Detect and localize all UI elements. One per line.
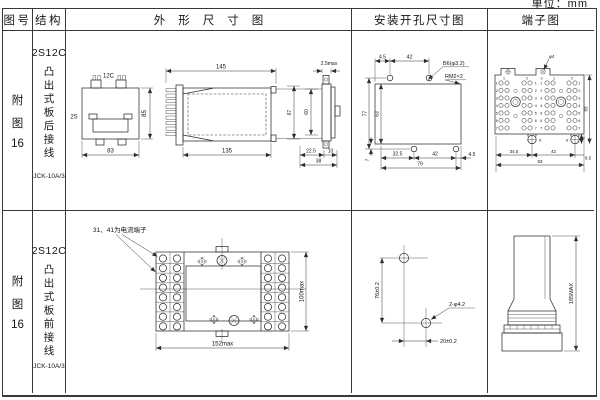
dim-185max: 185MAX <box>569 283 575 304</box>
row-num-right: 3 <box>578 96 580 100</box>
row-num-left: 6 <box>496 119 498 123</box>
dim-20: 20±0.2 <box>440 339 457 345</box>
dim-63: 63 <box>375 111 381 117</box>
col-num: 1 <box>553 77 555 81</box>
row-num-cr: 3 <box>540 96 542 100</box>
cover-side-view: 185MAX <box>488 211 593 392</box>
dim-2-5max: 2.5max <box>321 61 338 67</box>
dim-145: 145 <box>216 65 227 71</box>
row-num-right: 2 <box>578 89 580 93</box>
height-dim <box>552 236 580 351</box>
dim-22-5: 22.5 <box>306 149 316 155</box>
header-install: 安装开孔尺寸图 <box>374 12 465 28</box>
col-num: 1 <box>503 77 505 81</box>
dim-32-5: 32.5 <box>393 152 403 158</box>
dim-152max: 152max <box>212 342 233 348</box>
structure-cell-row1: 2S12C 凸出式板后接线 JCK-10A/3 <box>33 31 66 211</box>
label-2phi42: 2-φ4.2 <box>449 302 465 308</box>
dim-34-5: 34.5 <box>510 149 519 154</box>
dim-135: 135 <box>222 149 233 155</box>
figure-char: 图 <box>12 115 24 131</box>
thread-callout <box>445 80 466 84</box>
dim-6-5: 6.5 <box>585 156 592 161</box>
label-phi4: φ4 <box>549 54 555 59</box>
plate-feet <box>528 134 579 144</box>
terminal-cell-row1: φ4 1 2 3 1 2 1 2 3 4 5 <box>488 31 594 211</box>
terminal-drawing: φ4 1 2 3 1 2 1 2 3 4 5 <box>488 31 593 210</box>
terminal-cell-row2: 185MAX <box>488 211 594 393</box>
figure-char: 附 <box>12 92 24 108</box>
foot-num: 8 <box>566 139 568 143</box>
figure-number: 16 <box>11 319 24 331</box>
dim-83: 83 <box>107 149 114 155</box>
row-num-cr: 1 <box>540 81 542 85</box>
figure-cell-row1: 附 图 16 <box>3 31 33 211</box>
install-cell-row1: 4.5 42 B6(φ3.2) RM2×2 77 63 7 <box>352 31 488 211</box>
dim-10: 10 <box>328 149 334 155</box>
figure-char: 图 <box>12 296 24 312</box>
row-num-cr: 6 <box>540 119 542 123</box>
dim-12c: 12C <box>103 74 115 80</box>
dim-83-height: 83 <box>583 106 588 112</box>
note-leaders <box>116 235 158 273</box>
bottom-dims <box>381 146 471 170</box>
dim-76: 76±0.2 <box>375 282 381 299</box>
relay-front-face <box>140 238 306 342</box>
panel-cutout <box>375 75 461 152</box>
outline-cell-row1: 12C 2S 83 85 <box>66 31 352 211</box>
row-num-left: 4 <box>496 104 498 108</box>
row-num-cr: 2 <box>540 89 542 93</box>
row-num-cr: 4 <box>540 104 542 108</box>
row-num-cl: 1 <box>535 81 537 85</box>
outline-drawing-front-wiring: 31、41为电流端子 <box>66 211 351 392</box>
label-rm2: RM2×2 <box>445 74 463 80</box>
row-num-right: 1 <box>578 81 580 85</box>
col-num: 2 <box>526 77 528 81</box>
row-num-cr: 7 <box>540 126 542 130</box>
wiring-label: 凸出式板前接线 <box>42 264 57 359</box>
dim-85: 85 <box>142 110 148 117</box>
mount-hole-callout <box>544 59 549 70</box>
model-label: 2S12C <box>33 245 66 257</box>
row-num-right: 5 <box>578 111 580 115</box>
edge-thickness-dim <box>313 69 340 74</box>
dim-42-top: 42 <box>406 55 412 61</box>
header-terminal: 端子图 <box>522 12 561 28</box>
dim-42-bottom: 42 <box>432 152 438 158</box>
type-label: JCK-10A/3 <box>33 363 64 370</box>
hole-callout <box>431 308 475 320</box>
dim-60: 60 <box>304 109 310 115</box>
row-num-left: 2 <box>496 89 498 93</box>
dim-67: 67 <box>287 110 293 116</box>
dim-83-total: 83 <box>537 159 543 164</box>
header-outline: 外形尺寸图 <box>141 12 277 28</box>
wiring-label: 凸出式板后接线 <box>42 66 57 161</box>
dim-77: 77 <box>363 111 369 117</box>
dim-2s: 2S <box>70 115 77 121</box>
top-dims <box>375 58 429 82</box>
row-num-cl: 6 <box>535 119 537 123</box>
header-structure: 结构 <box>35 12 63 28</box>
current-terminal-note: 31、41为电流端子 <box>93 225 147 234</box>
dim-7: 7 <box>365 158 370 161</box>
figure-cell-row2: 附 图 16 <box>3 211 33 393</box>
row-num-right: 7 <box>578 126 580 130</box>
dim-42-terminal: 42 <box>551 149 557 154</box>
install-drawing-front-wiring: 76±0.2 20±0.2 2-φ4.2 <box>352 211 487 392</box>
dim-4-5-bottom: 4.5 <box>469 152 476 158</box>
dim-100max: 100max <box>300 281 306 302</box>
row-num-right: 6 <box>578 119 580 123</box>
row-num-cl: 5 <box>535 111 537 115</box>
figure-char: 附 <box>12 273 24 289</box>
row-num-left: 3 <box>496 96 498 100</box>
relay-side-view <box>166 85 322 145</box>
row-num-cl: 2 <box>535 89 537 93</box>
header-figure: 图号 <box>4 12 32 28</box>
dim-79: 79 <box>417 162 423 168</box>
type-label: JCK-10A/3 <box>33 173 64 180</box>
dim-38: 38 <box>316 159 322 165</box>
mount-holes <box>380 245 442 347</box>
relay-cover <box>502 236 562 351</box>
relay-front-view <box>82 76 139 146</box>
row-num-cl: 7 <box>535 126 537 130</box>
label-b6: B6(φ3.2) <box>443 61 465 67</box>
install-drawing-rear-wiring: 4.5 42 B6(φ3.2) RM2×2 77 63 7 <box>352 31 487 210</box>
row-num-cl: 3 <box>535 96 537 100</box>
row-num-left: 7 <box>496 126 498 130</box>
terminal-grid <box>499 81 577 130</box>
install-cell-row2: 76±0.2 20±0.2 2-φ4.2 <box>352 211 488 393</box>
col-num: 3 <box>541 77 543 81</box>
model-label: 2S12C <box>33 47 66 59</box>
dim-4-5-top: 4.5 <box>379 55 386 61</box>
row-num-cl: 4 <box>535 104 537 108</box>
col-num: 2 <box>571 77 573 81</box>
row-num-left: 5 <box>496 111 498 115</box>
row-num-right: 4 <box>578 104 580 108</box>
row-num-cr: 5 <box>540 111 542 115</box>
outline-cell-row2: 31、41为电流端子 <box>66 211 352 393</box>
structure-cell-row2: 2S12C 凸出式板前接线 JCK-10A/3 <box>33 211 66 393</box>
outline-drawing-rear-wiring: 12C 2S 83 85 <box>66 31 351 210</box>
foot-num: 8 <box>539 139 541 143</box>
row-num-left: 1 <box>496 81 498 85</box>
panel-edge-view <box>322 76 340 149</box>
figure-number: 16 <box>11 138 24 150</box>
spec-table: 图号 结构 外形尺寸图 安装开孔尺寸图 端子图 附 图 16 2S12C 凸出式… <box>2 8 597 397</box>
